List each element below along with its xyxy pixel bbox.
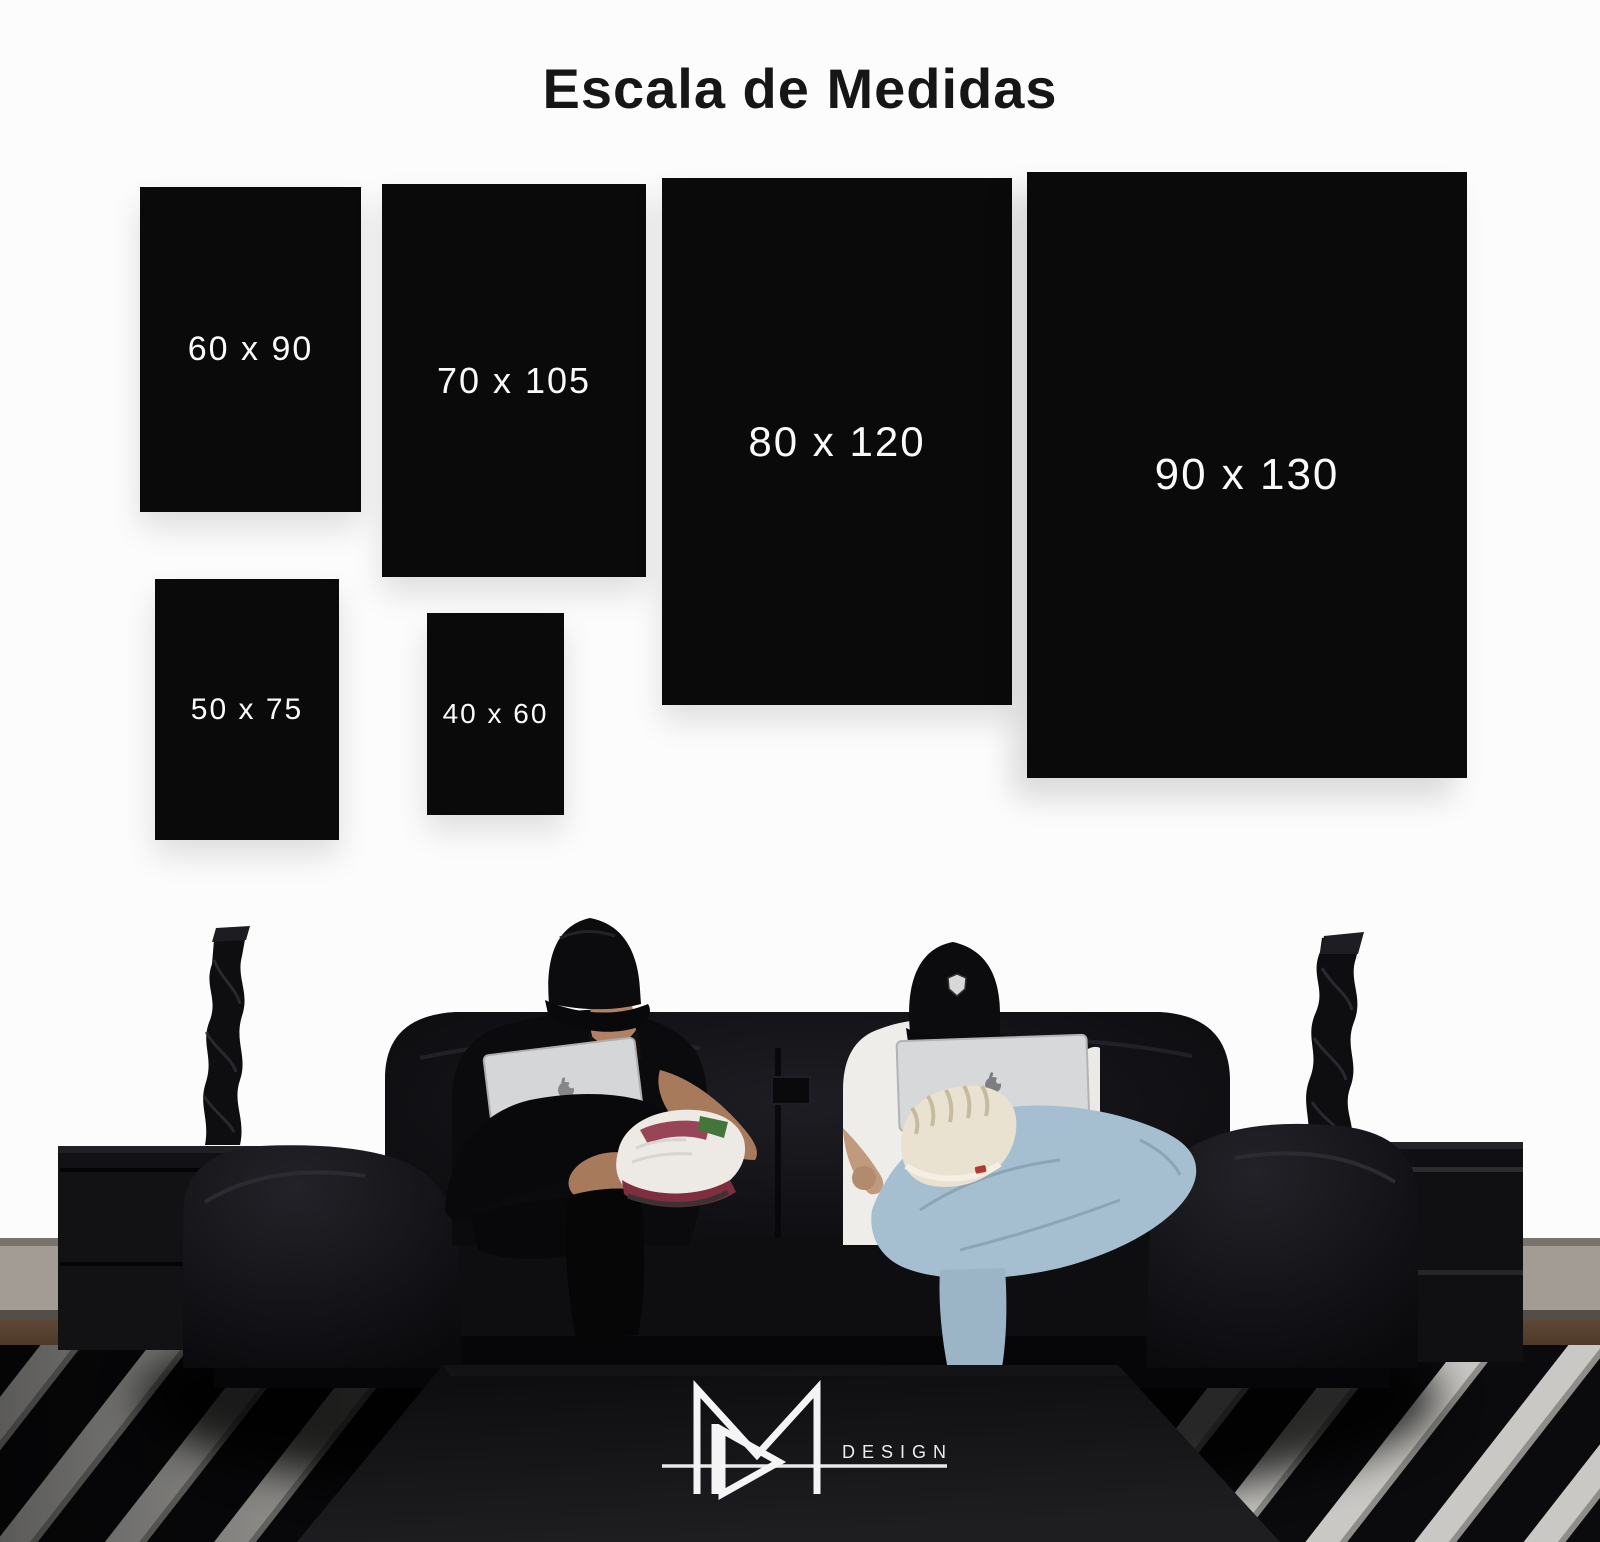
showroom-photo: DESIGN [0,0,1600,1542]
couch-armrest-left [183,1145,462,1368]
left-twisted-sculpture [203,926,250,1145]
black-sock [566,1189,644,1338]
right-twisted-sculpture [1306,932,1364,1147]
hand [852,1166,876,1190]
jeans-shin [939,1268,1006,1380]
coffee-table [297,1365,1280,1542]
size-scale-graphic: Escala de Medidas 60 x 90 70 x 105 80 x … [0,0,1600,1542]
couch [183,1012,1418,1388]
design-wordmark: DESIGN [842,1442,953,1462]
